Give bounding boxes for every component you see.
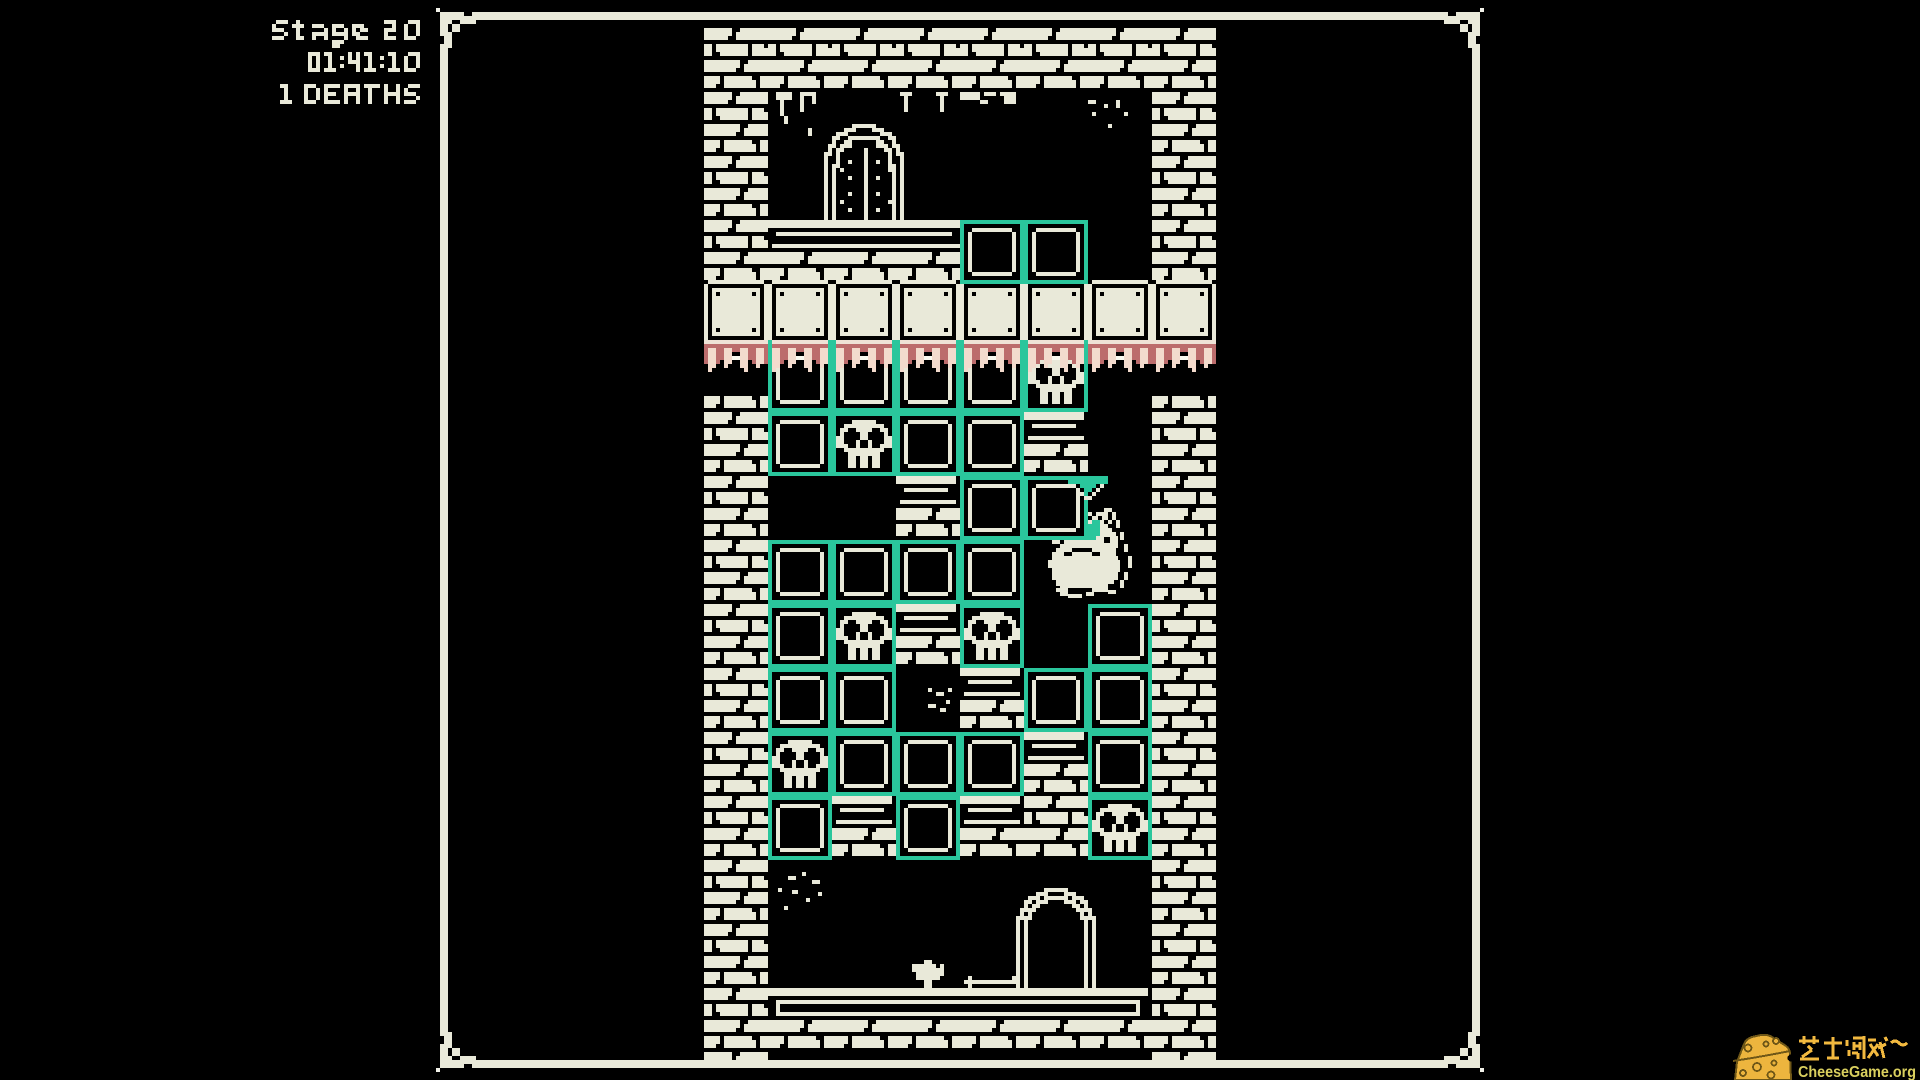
svg-text:CheeseGame.org: CheeseGame.org xyxy=(1798,1064,1916,1080)
